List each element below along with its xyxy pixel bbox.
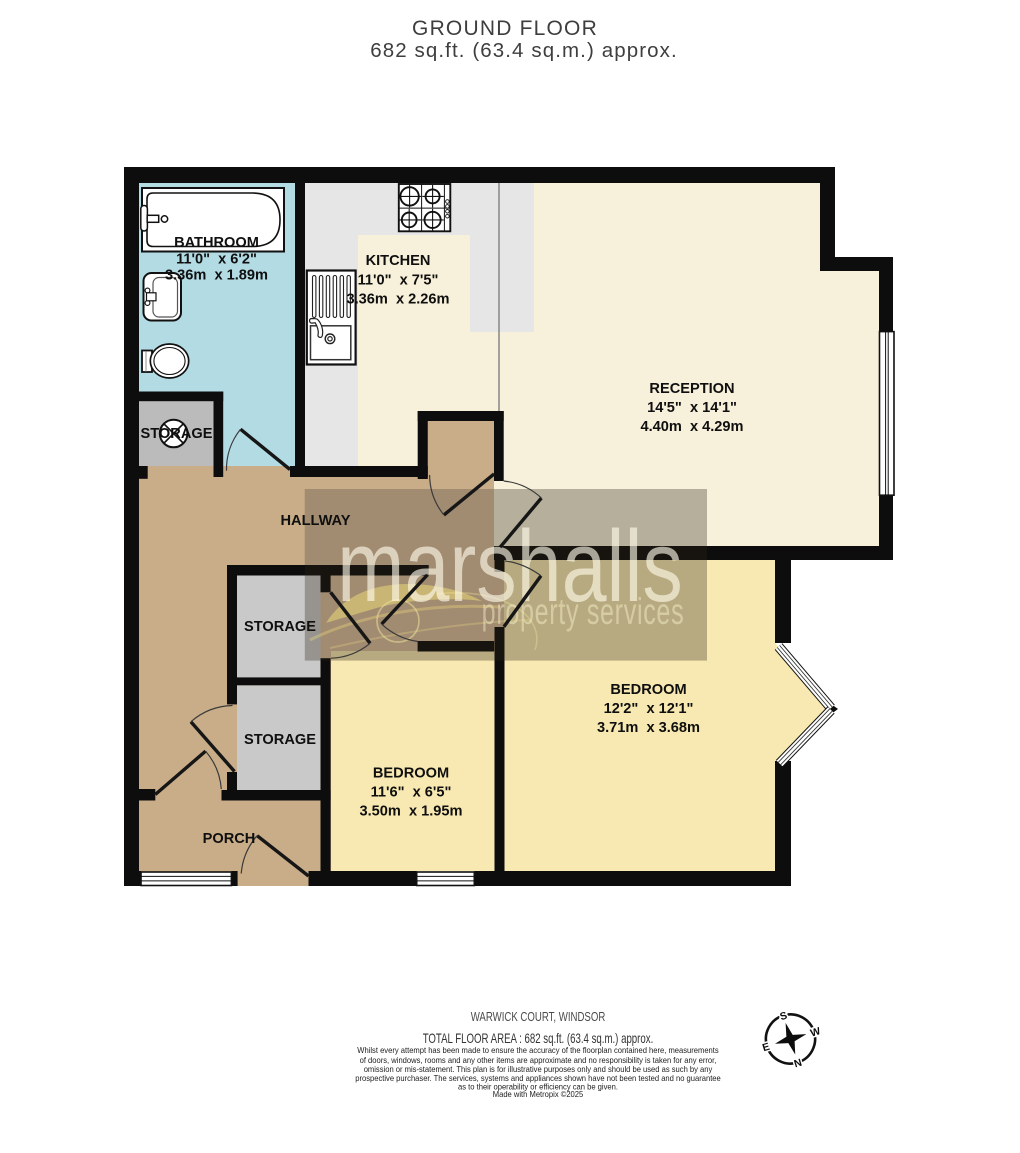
svg-text:3.36m x 1.89m: 3.36m x 1.89m bbox=[165, 268, 268, 284]
svg-text:11'0" x 6'2": 11'0" x 6'2" bbox=[176, 252, 257, 268]
svg-text:STORAGE: STORAGE bbox=[141, 426, 213, 442]
svg-text:Whilst every attempt has been: Whilst every attempt has been made to en… bbox=[357, 1046, 718, 1056]
svg-text:12'2" x 12'1": 12'2" x 12'1" bbox=[604, 701, 694, 717]
svg-text:RECEPTION: RECEPTION bbox=[649, 381, 734, 397]
svg-text:11'0" x 7'5": 11'0" x 7'5" bbox=[358, 273, 439, 289]
svg-text:PORCH: PORCH bbox=[203, 831, 256, 847]
svg-text:BEDROOM: BEDROOM bbox=[373, 766, 449, 782]
svg-text:3.36m x 2.26m: 3.36m x 2.26m bbox=[346, 292, 449, 308]
svg-text:TOTAL FLOOR AREA : 682 sq.ft.: TOTAL FLOOR AREA : 682 sq.ft. (63.4 sq.m… bbox=[423, 1030, 654, 1046]
svg-text:STORAGE: STORAGE bbox=[244, 732, 316, 748]
svg-text:property services: property services bbox=[482, 590, 685, 632]
svg-text:WARWICK COURT, WINDSOR: WARWICK COURT, WINDSOR bbox=[471, 1011, 606, 1024]
svg-text:GROUND FLOOR: GROUND FLOOR bbox=[412, 17, 598, 40]
svg-text:KITCHEN: KITCHEN bbox=[366, 253, 431, 269]
svg-text:11'6" x 6'5": 11'6" x 6'5" bbox=[371, 785, 452, 801]
svg-text:HALLWAY: HALLWAY bbox=[280, 513, 350, 529]
svg-text:BATHROOM: BATHROOM bbox=[174, 235, 259, 251]
svg-text:Made with Metropix ©2025: Made with Metropix ©2025 bbox=[493, 1090, 584, 1100]
svg-text:14'5" x 14'1": 14'5" x 14'1" bbox=[647, 400, 737, 416]
svg-text:3.50m x 1.95m: 3.50m x 1.95m bbox=[359, 804, 462, 820]
svg-text:682 sq.ft. (63.4 sq.m.) approx: 682 sq.ft. (63.4 sq.m.) approx. bbox=[370, 39, 678, 62]
svg-text:BEDROOM: BEDROOM bbox=[610, 682, 686, 698]
svg-text:4.40m x 4.29m: 4.40m x 4.29m bbox=[640, 419, 743, 435]
svg-text:3.71m x 3.68m: 3.71m x 3.68m bbox=[597, 720, 700, 736]
svg-text:STORAGE: STORAGE bbox=[244, 619, 316, 635]
